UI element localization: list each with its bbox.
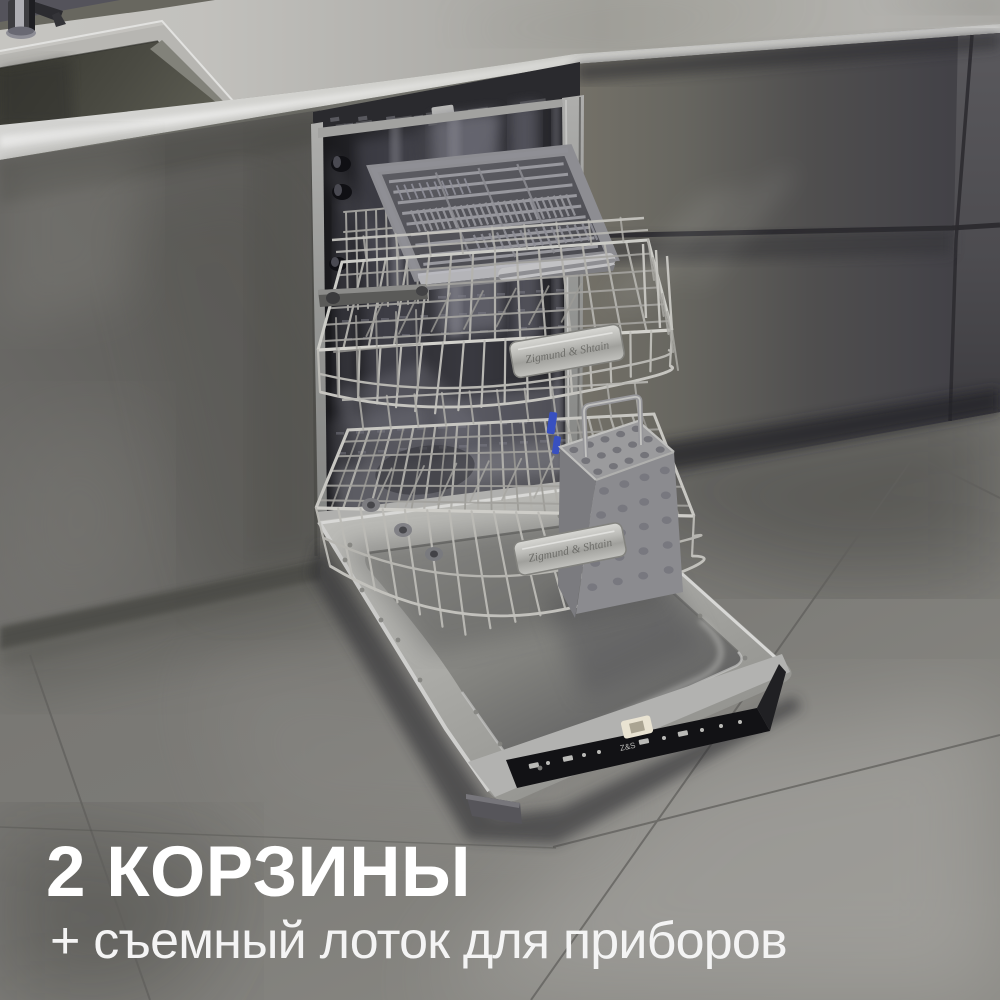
svg-text:+ съемный лоток для приборов: + съемный лоток для приборов <box>50 912 787 970</box>
svg-text:2 КОРЗИНЫ: 2 КОРЗИНЫ <box>46 833 471 912</box>
